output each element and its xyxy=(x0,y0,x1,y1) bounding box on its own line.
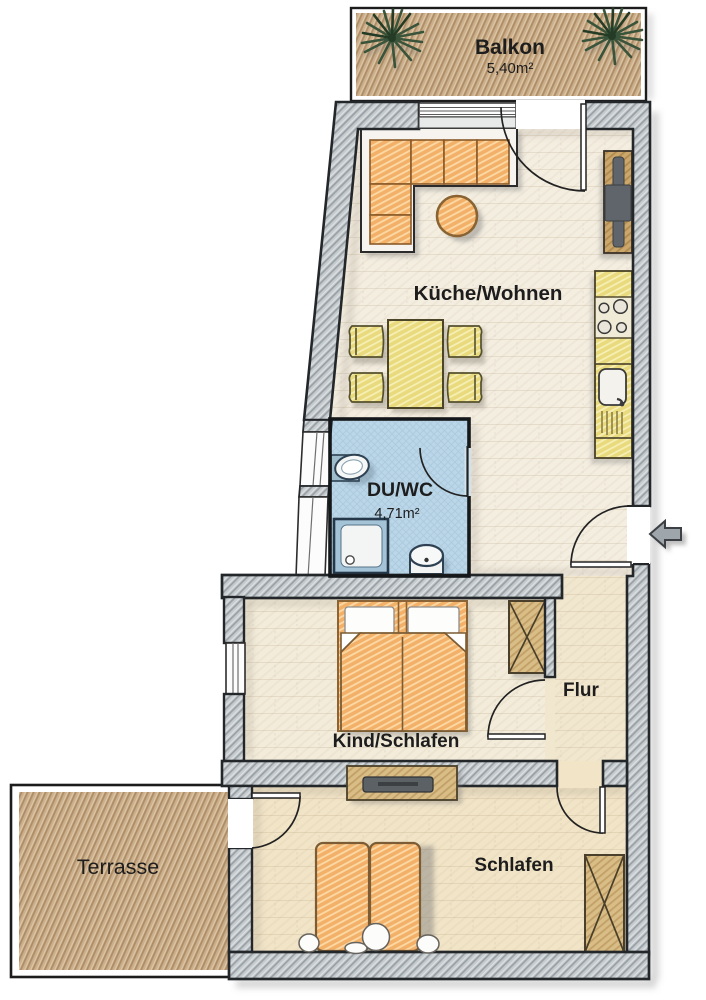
svg-text:Küche/Wohnen: Küche/Wohnen xyxy=(414,282,563,305)
svg-text:Schlafen: Schlafen xyxy=(474,855,553,876)
svg-text:5,40m²: 5,40m² xyxy=(487,60,534,77)
svg-text:Kind/Schlafen: Kind/Schlafen xyxy=(333,731,460,752)
svg-text:Balkon: Balkon xyxy=(475,36,545,59)
svg-text:Terrasse: Terrasse xyxy=(77,855,159,879)
svg-text:Flur: Flur xyxy=(563,680,599,701)
svg-text:DU/WC: DU/WC xyxy=(367,479,433,501)
svg-text:4,71m²: 4,71m² xyxy=(374,506,419,522)
